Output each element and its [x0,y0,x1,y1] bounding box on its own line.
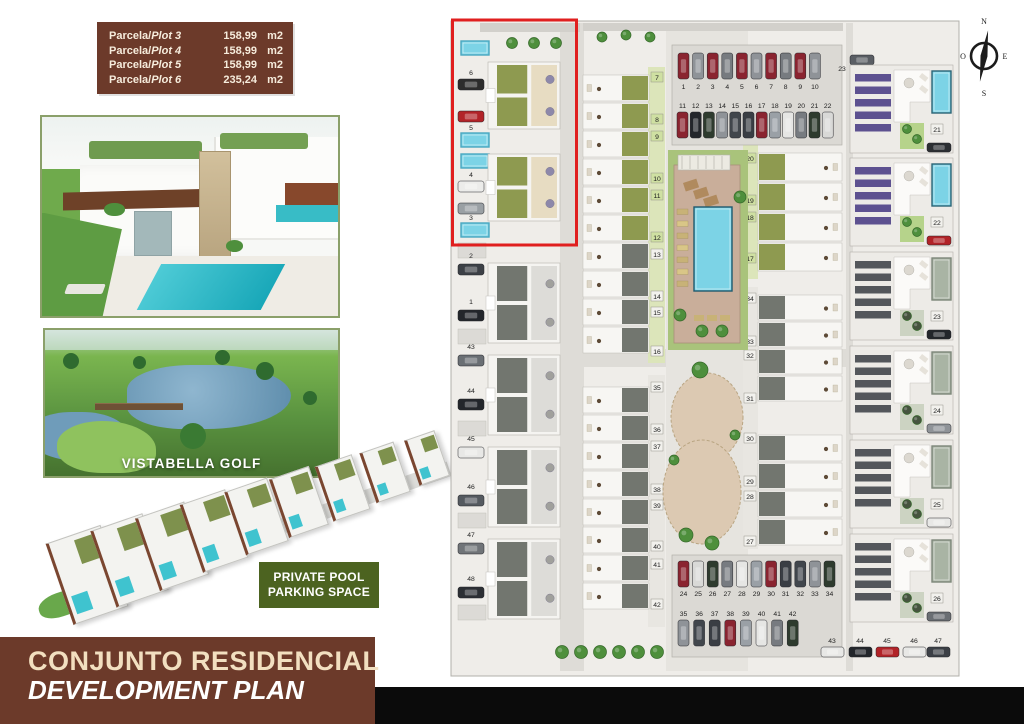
plot-label: Parcela/Plot 5 [109,59,211,72]
bush [546,556,554,564]
garden [759,323,785,346]
parking-number: 46 [910,638,918,645]
parking-number: 28 [738,591,746,598]
neighbour-pool [276,205,338,223]
car-glass [798,567,803,581]
car-glass [681,59,686,73]
tree-highlight [552,39,556,43]
planter [587,169,592,176]
entry [486,89,495,103]
unit-number: 7 [655,75,659,82]
site-plan-map: 6543214344454647487891011121314151635363… [450,15,965,690]
entry [486,572,495,586]
patio-table [904,359,914,369]
tree-highlight [736,193,740,197]
car-glass [465,313,477,319]
parking-number: 44 [467,388,475,395]
bush [546,372,554,380]
unit-number: 9 [655,134,659,141]
plot-label-prefix: Parcela/ [109,30,151,42]
tree [63,353,79,369]
garden [759,184,785,210]
garden [622,104,648,128]
pergola-slat [855,180,891,188]
car-glass [746,118,751,132]
pool [932,446,951,488]
car-glass [465,184,477,190]
pergola-slat [855,449,891,457]
storage-pad [458,421,486,436]
compass-east: E [1003,52,1008,61]
tree-highlight [914,323,917,326]
car-glass [783,567,788,581]
parking-number: 5 [740,84,744,91]
car-glass [812,118,817,132]
car-glass [933,520,945,525]
planter [587,453,592,460]
pool [932,540,951,582]
patio-table [597,339,601,343]
patio-table [824,503,828,507]
parking-number: 29 [753,591,761,598]
unit-number: 30 [746,436,754,443]
tree [632,646,645,659]
pergola-slat [855,380,891,388]
parking-number: 41 [773,611,781,618]
parking-number: 36 [695,611,703,618]
tree [913,322,922,331]
car-glass [710,567,715,581]
parking-number: 47 [934,638,942,645]
car-glass [733,118,738,132]
garden [497,65,527,94]
car-glass [739,567,744,581]
parking-number: 17 [758,103,766,110]
car-glass [465,498,477,504]
villa-number: 24 [933,408,941,415]
patio-table [597,567,601,571]
parking-number: 44 [856,638,864,645]
tree-highlight [558,648,563,653]
bush [546,75,554,83]
tree [669,455,679,465]
tree [645,32,655,42]
pool [932,71,951,113]
planter [587,397,592,404]
parking-number: 26 [709,591,717,598]
garden [622,76,648,100]
storage-pad [458,513,486,528]
tree-highlight [914,417,917,420]
patio-table [597,227,601,231]
garden [759,350,785,373]
car-glass [465,114,477,120]
pergola-slat [855,393,891,401]
parking-number: 32 [797,591,805,598]
car-glass [798,59,803,73]
car-glass [706,118,711,132]
garden [759,296,785,319]
garden [622,584,648,608]
car-glass [790,626,795,640]
patio-table [824,475,828,479]
planter [587,593,592,600]
plot-table: Parcela/Plot 3158,99m2Parcela/Plot 4158,… [97,22,293,94]
unit-number: 31 [746,396,754,403]
planter [833,331,838,338]
plot-area: 158,99 [211,30,257,43]
patio-table [824,226,828,230]
patio-table [597,115,601,119]
pergola-slat [855,261,891,269]
tree [913,416,922,425]
wall [480,23,580,32]
tree [913,604,922,613]
photo-horizon [45,330,338,350]
car-glass [465,206,477,212]
car-glass [465,358,477,364]
tree-highlight [904,313,907,316]
tree [734,191,746,203]
parking-number: 8 [784,84,788,91]
badge-line1: PRIVATE POOL [259,570,379,585]
lounger [677,269,688,275]
car-glass [856,57,868,62]
planter [833,445,838,452]
car-glass [680,118,685,132]
lounger [677,257,688,263]
planter [587,337,592,344]
pergola-slat [855,405,891,413]
unit-number: 29 [746,479,754,486]
entry [486,480,495,494]
pergola-slat [855,124,891,132]
planter [587,281,592,288]
garden [759,520,785,544]
pergola-slat [855,299,891,307]
planter [587,253,592,260]
plot-number: 6 [469,70,473,77]
car-glass [933,332,945,337]
storage-pad [458,605,486,620]
car-glass [768,59,773,73]
entry [486,296,495,310]
private-pool [136,264,285,310]
aerial-house [90,513,168,608]
pool [932,352,951,394]
patio-table [824,196,828,200]
car-glass [681,626,686,640]
plunge-pool [332,498,346,513]
parking-number: 43 [828,638,836,645]
car-glass [855,649,866,654]
parking-number: 10 [811,84,819,91]
pergola-slat [855,192,891,200]
plot-label-name: Plot 6 [151,74,181,86]
car-glass [812,567,817,581]
tree [597,32,607,42]
tree [730,430,740,440]
planter [833,254,838,261]
wall [583,23,843,31]
pergola-slat [855,499,891,507]
pergola-slat [855,286,891,294]
parking-number: 47 [467,532,475,539]
bush [546,594,554,602]
planter [587,113,592,120]
patio-table [597,199,601,203]
car-glass [710,59,715,73]
plunge-pool [419,467,430,479]
roof-garden [220,133,309,149]
unit-number: 36 [653,427,661,434]
planter [587,141,592,148]
pergola-slat [855,167,891,175]
tree-highlight [914,229,917,232]
lounger [720,315,730,321]
garden [497,489,527,524]
patio-table [597,399,601,403]
patio-table [597,595,601,599]
tree-highlight [695,365,701,371]
tree [705,536,719,550]
car-glass [465,450,477,456]
roof-garden [420,435,437,453]
patio-table [904,547,914,557]
garden [622,556,648,580]
pergola-slat [855,99,891,107]
car-glass [785,118,790,132]
terrace [531,157,557,218]
parking-number: 38 [727,611,735,618]
planter [587,197,592,204]
plot-unit: m2 [257,74,283,87]
tree-highlight [904,595,907,598]
unit-number: 42 [653,602,661,609]
car-glass [754,59,759,73]
tree [621,30,631,40]
tree-highlight [718,327,722,331]
plot-label: Parcela/Plot 4 [109,45,211,58]
car-glass [759,118,764,132]
garden [759,244,785,270]
villa-number: 21 [933,127,941,134]
aerial-house [46,525,129,625]
parking-number: 21 [811,103,819,110]
plot-area: 235,24 [211,74,257,87]
lounger [677,233,688,239]
unit-number: 38 [653,487,661,494]
parking-number: 33 [811,591,819,598]
garden [497,542,527,577]
garden [622,444,648,468]
terrace [531,358,557,432]
unit-number: 41 [653,562,661,569]
roof-garden [160,508,189,537]
unit-number: 37 [653,444,661,451]
patio-table [597,511,601,515]
patio-table [824,166,828,170]
tree [696,325,708,337]
pool [932,258,951,300]
title-line2: DEVELOPMENT PLAN [28,676,375,705]
patio-table [904,171,914,181]
unit-number: 11 [653,193,660,200]
tree [594,646,607,659]
unit-number: 14 [653,294,661,301]
compass-rose: N O E S [952,12,1016,108]
planter [833,385,838,392]
bush [546,167,554,175]
pergola-slat [855,74,891,82]
garden [622,216,648,240]
garden [759,214,785,240]
garden [497,397,527,432]
plot-number: 4 [469,172,473,179]
bush [546,318,554,326]
car-glass [739,59,744,73]
plot-label-prefix: Parcela/ [109,45,151,57]
patio-table [597,455,601,459]
car-glass [465,267,477,273]
parking-number: 9 [798,84,802,91]
tree-highlight [615,648,620,653]
car-glass [743,626,748,640]
planter [833,304,838,311]
garden [622,132,648,156]
tree-highlight [904,219,907,222]
golf-caption: VISTABELLA GOLF [45,456,338,471]
parking-number: 45 [883,638,891,645]
tree [651,646,664,659]
planter [833,473,838,480]
aerial-grass [35,585,88,623]
patio-table [904,265,914,275]
plot-area: 158,99 [211,59,257,72]
parking-number: 31 [782,591,790,598]
tree-highlight [530,39,534,43]
car-glass [725,567,730,581]
car-glass [465,402,477,408]
parking-number: 12 [692,103,700,110]
parking-number: 15 [732,103,740,110]
tree-highlight [914,511,917,514]
car-glass [909,649,920,654]
garden [622,472,648,496]
patio-table [597,171,601,175]
tree [133,356,146,369]
tree-highlight [698,327,702,331]
villa-number: 22 [933,220,941,227]
tree-highlight [653,648,658,653]
car-glass [719,118,724,132]
tree-highlight [671,457,675,461]
car-glass [465,546,477,552]
tree [507,38,518,49]
planter [833,501,838,508]
lounger [677,245,688,251]
car-glass [783,59,788,73]
bush [546,280,554,288]
patio-table [597,143,601,147]
compass-west: O [960,52,966,61]
glass-door [134,211,172,257]
car-glass [712,626,717,640]
garden [622,416,648,440]
garden [622,188,648,212]
tree [674,309,686,321]
tree [679,528,693,542]
pergola-slat [855,474,891,482]
pergola-slat [855,368,891,376]
bush [546,199,554,207]
villa-number: 23 [933,314,941,321]
garden [759,464,785,488]
aerial-house [225,478,290,556]
pergola-slat [855,581,891,589]
palm-tree [180,423,206,449]
car-glass [696,626,701,640]
roof-garden [247,483,272,508]
parking-number: 4 [725,84,729,91]
garden [759,436,785,460]
planter [833,358,838,365]
plot-table-row: Parcela/Plot 6235,24m2 [109,74,283,87]
planter [833,164,838,171]
golf-bridge [95,403,183,410]
roof-garden [117,520,148,550]
plunge-pool [376,482,389,496]
patio-table [597,427,601,431]
golf-photo: VISTABELLA GOLF [43,328,340,478]
car-glass [754,567,759,581]
plot-label-name: Plot 4 [151,45,181,57]
parking-number: 40 [758,611,766,618]
car-glass [695,59,700,73]
tree [903,406,912,415]
photo-fence [285,183,338,205]
unit-number: 16 [653,349,661,356]
garden [622,272,648,296]
garden [622,528,648,552]
patio-table [904,453,914,463]
tree [256,362,274,380]
lounger [677,209,688,215]
garden [622,328,648,352]
planter [587,225,592,232]
bush [546,410,554,418]
garden [497,266,527,301]
parking-number: 1 [682,84,686,91]
pool [694,207,732,291]
tree [529,38,540,49]
patio-table [597,283,601,287]
parking-number: 22 [824,103,832,110]
roof-garden [74,532,107,564]
bush [546,107,554,115]
entry [486,181,495,195]
parking-number: 23 [838,66,846,73]
tree [913,228,922,237]
tree [692,362,708,378]
pergola-slat [855,205,891,213]
villa-number: 26 [933,596,941,603]
car-glass [827,567,832,581]
parking-number: 14 [718,103,726,110]
garden [759,492,785,516]
parking-number: 42 [789,611,797,618]
plot-table-row: Parcela/Plot 4158,99m2 [109,45,283,58]
